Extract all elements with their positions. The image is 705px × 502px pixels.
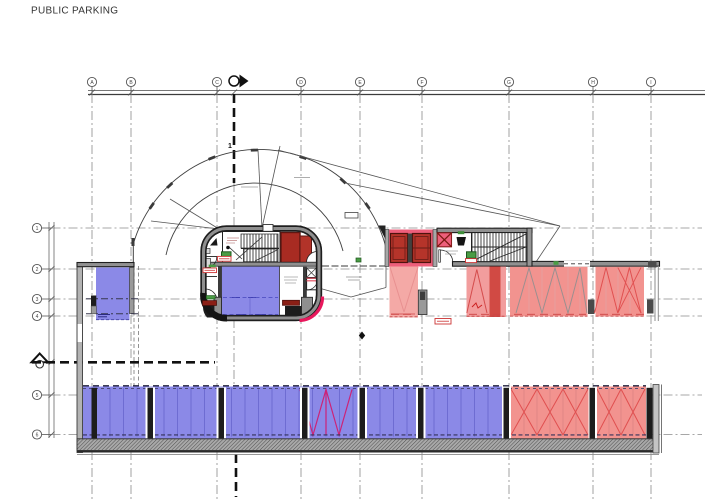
svg-text:1: 1 bbox=[36, 226, 39, 232]
svg-text:6: 6 bbox=[36, 433, 39, 439]
svg-text:PUBLIC PARKING: PUBLIC PARKING bbox=[31, 6, 118, 17]
svg-text:D: D bbox=[299, 80, 303, 86]
svg-text:H: H bbox=[591, 80, 595, 86]
svg-text:G: G bbox=[507, 80, 511, 86]
svg-text:5: 5 bbox=[36, 393, 39, 399]
svg-text:2: 2 bbox=[36, 267, 39, 273]
svg-text:C: C bbox=[215, 80, 219, 86]
svg-text:I: I bbox=[650, 80, 651, 86]
svg-text:1: 1 bbox=[228, 143, 232, 150]
svg-text:4: 4 bbox=[36, 314, 39, 320]
svg-text:F: F bbox=[420, 80, 423, 86]
svg-text:3: 3 bbox=[36, 297, 39, 303]
